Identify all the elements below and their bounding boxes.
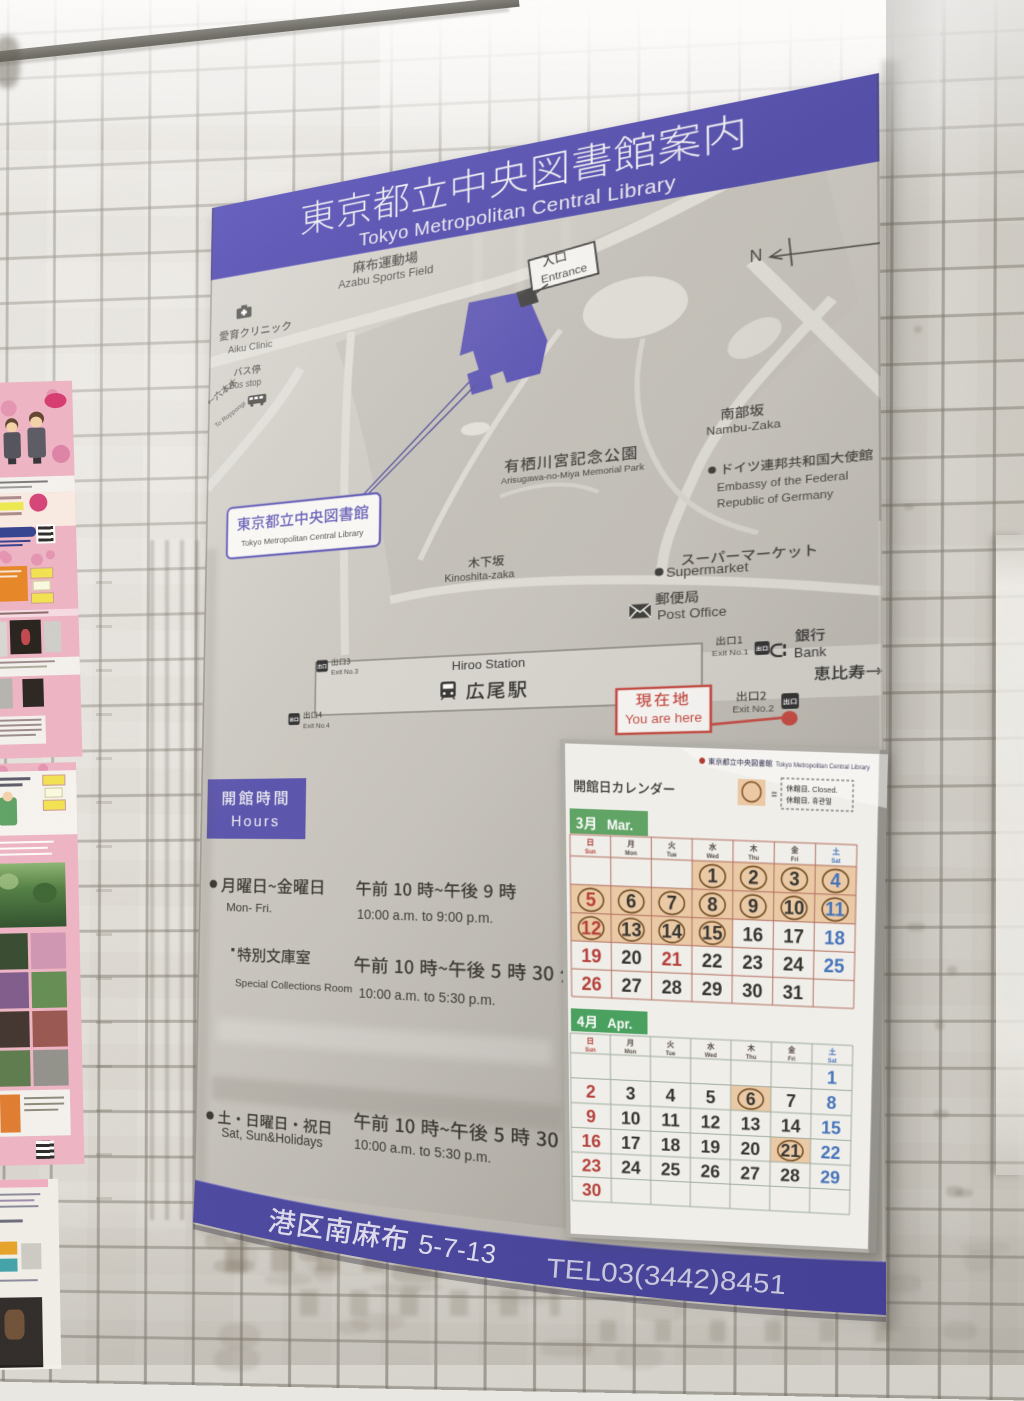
- svg-text:Apr.: Apr.: [607, 1016, 632, 1032]
- svg-text:22: 22: [702, 951, 723, 973]
- svg-text:26: 26: [700, 1161, 720, 1182]
- svg-text:Thu: Thu: [746, 1054, 757, 1061]
- svg-text:29: 29: [702, 979, 723, 1001]
- svg-text:25: 25: [661, 1159, 681, 1180]
- svg-text:19: 19: [701, 1137, 721, 1158]
- svg-text:3: 3: [626, 1083, 636, 1104]
- svg-text:22: 22: [820, 1142, 840, 1163]
- svg-text:30: 30: [582, 1180, 602, 1201]
- svg-text:10: 10: [621, 1108, 641, 1129]
- svg-text:1: 1: [707, 866, 717, 888]
- svg-text:2: 2: [748, 867, 759, 889]
- svg-text:30: 30: [742, 980, 763, 1002]
- svg-text:20: 20: [621, 947, 641, 969]
- svg-text:18: 18: [824, 927, 845, 949]
- svg-text:Closed.: Closed.: [812, 785, 838, 795]
- svg-text:23: 23: [582, 1155, 602, 1176]
- svg-text:19: 19: [581, 946, 602, 968]
- svg-text:17: 17: [621, 1133, 641, 1154]
- svg-text:Mon: Mon: [624, 1048, 636, 1055]
- svg-text:25: 25: [823, 956, 844, 978]
- svg-text:11: 11: [661, 1110, 680, 1131]
- svg-text:9: 9: [748, 896, 759, 918]
- svg-text:Wed: Wed: [706, 853, 718, 860]
- svg-text:13: 13: [741, 1114, 761, 1135]
- svg-text:28: 28: [662, 977, 682, 999]
- svg-text:16: 16: [743, 924, 764, 946]
- svg-text:4: 4: [830, 870, 842, 892]
- svg-text:7: 7: [786, 1091, 796, 1112]
- svg-text:Tue: Tue: [666, 1050, 676, 1057]
- svg-text:Sat: Sat: [828, 1058, 838, 1065]
- svg-text:3: 3: [789, 869, 800, 891]
- svg-text:28: 28: [780, 1165, 800, 1186]
- svg-text:18: 18: [661, 1135, 681, 1156]
- svg-text:27: 27: [621, 975, 641, 997]
- svg-text:Wed: Wed: [705, 1052, 717, 1059]
- svg-text:12: 12: [701, 1112, 721, 1133]
- svg-text:16: 16: [581, 1131, 601, 1152]
- svg-text:8: 8: [826, 1093, 836, 1114]
- svg-text:6: 6: [746, 1089, 756, 1110]
- svg-text:2: 2: [586, 1082, 596, 1103]
- svg-text:Fri: Fri: [791, 856, 799, 863]
- svg-text:17: 17: [783, 926, 804, 948]
- svg-text:24: 24: [783, 954, 805, 976]
- svg-text:5: 5: [706, 1087, 716, 1108]
- svg-text:15: 15: [821, 1118, 841, 1139]
- svg-text:Fri: Fri: [788, 1056, 796, 1063]
- svg-text:27: 27: [740, 1163, 760, 1184]
- svg-text:Mar.: Mar.: [607, 818, 633, 835]
- svg-text:7: 7: [667, 893, 677, 915]
- svg-text:21: 21: [662, 949, 682, 971]
- svg-text:=: =: [771, 789, 777, 801]
- svg-text:11: 11: [825, 899, 845, 921]
- svg-text:9: 9: [586, 1106, 596, 1127]
- svg-text:4: 4: [666, 1085, 676, 1106]
- svg-text:Tue: Tue: [667, 852, 677, 859]
- svg-text:23: 23: [742, 952, 763, 974]
- svg-text:31: 31: [782, 982, 803, 1004]
- svg-text:20: 20: [740, 1139, 760, 1160]
- svg-text:5: 5: [586, 890, 596, 912]
- svg-text:29: 29: [820, 1167, 840, 1188]
- svg-text:Sat: Sat: [831, 858, 841, 865]
- svg-text:Sun: Sun: [585, 848, 596, 855]
- svg-text:Sun: Sun: [585, 1047, 596, 1054]
- svg-text:6: 6: [626, 891, 636, 913]
- svg-text:8: 8: [707, 894, 717, 916]
- svg-text:24: 24: [621, 1157, 641, 1178]
- svg-text:26: 26: [581, 974, 601, 996]
- svg-text:14: 14: [781, 1116, 801, 1137]
- svg-text:Mon: Mon: [625, 850, 637, 857]
- svg-text:Thu: Thu: [748, 855, 759, 862]
- svg-text:1: 1: [827, 1068, 837, 1089]
